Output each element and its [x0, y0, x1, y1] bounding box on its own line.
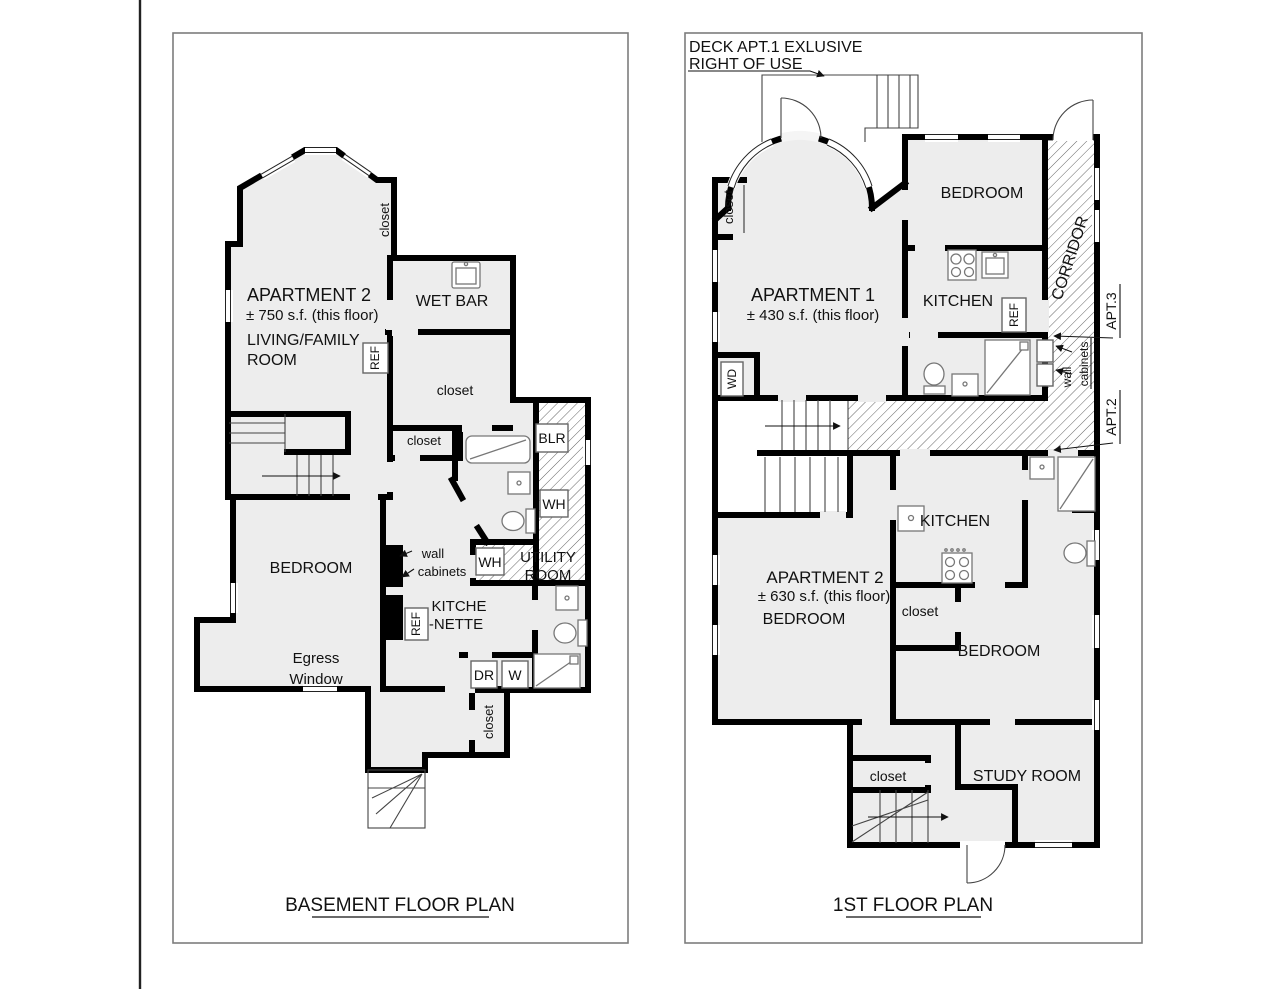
toilet-icon	[554, 620, 587, 646]
kitchen-sink-icon	[982, 252, 1008, 278]
utility-room-label-2: ROOM	[525, 567, 572, 584]
laundry-sink-icon	[556, 586, 578, 610]
shower-icon	[534, 654, 580, 688]
utility-room-label-1: UTILITY	[520, 549, 576, 566]
ref-label: REF	[1007, 303, 1021, 327]
boiler-label: BLR	[538, 430, 565, 446]
apt2-label: APT.2	[1103, 398, 1119, 436]
wall-cabinets-label-2: cabinets	[1077, 342, 1091, 387]
bathroom-sink-icon	[952, 374, 978, 396]
apartment1-area: ± 430 s.f. (this floor)	[747, 307, 879, 324]
wet-bar-sink-icon	[452, 262, 480, 288]
deck-note-1: DECK APT.1 EXLUSIVE	[689, 39, 862, 56]
bedroom-label: BEDROOM	[941, 185, 1024, 202]
shower-icon	[985, 340, 1030, 395]
basement-entry-stairs	[368, 770, 425, 828]
apartment1-label: APARTMENT 1	[751, 285, 875, 305]
wall-cabinets-label-1: wall	[421, 546, 445, 561]
first-floor-title: 1ST FLOOR PLAN	[833, 895, 993, 916]
closet-label: closet	[721, 190, 736, 224]
living-room-label-2: ROOM	[247, 352, 297, 369]
water-heater-label: WH	[478, 554, 501, 570]
ref-label: REF	[368, 346, 382, 370]
wall-cabinet-box	[1037, 364, 1053, 386]
deck-note-2: RIGHT OF USE	[689, 56, 803, 73]
egress-window-label-1: Egress	[293, 650, 340, 667]
closet-label: closet	[437, 382, 474, 398]
stove-icon	[948, 250, 976, 280]
wall-cabinets-label-1: wall	[1060, 367, 1074, 389]
kitchen-label: KITCHEN	[920, 513, 990, 530]
stove-icon	[942, 549, 972, 583]
water-heater-label: WH	[542, 496, 565, 512]
wet-bar-label: WET BAR	[416, 293, 489, 310]
first-floor-plan: DECK APT.1 EXLUSIVE RIGHT OF USE closet …	[685, 33, 1142, 943]
apartment2-label: APARTMENT 2	[766, 568, 883, 587]
basement-floor-plan: APARTMENT 2 ± 750 s.f. (this floor) LIVI…	[173, 33, 628, 943]
floor-plan-drawing: APARTMENT 2 ± 750 s.f. (this floor) LIVI…	[0, 0, 1280, 989]
kitchenette-label-2: -NETTE	[429, 616, 483, 633]
study-room-label: STUDY ROOM	[973, 768, 1081, 785]
dryer-label: DR	[474, 667, 494, 683]
apt3-label: APT.3	[1103, 292, 1119, 330]
apartment2-label: APARTMENT 2	[247, 285, 371, 305]
bathtub-icon	[466, 436, 530, 463]
closet-label: closet	[902, 603, 939, 619]
closet-label: closet	[481, 705, 496, 739]
washer-dryer-label: WD	[725, 369, 739, 389]
bedroom-label: BEDROOM	[270, 560, 353, 577]
wall-cabinets-label-2: cabinets	[418, 564, 467, 579]
kitchen-label: KITCHEN	[923, 293, 993, 310]
egress-window-label-2: Window	[289, 671, 343, 688]
basement-title: BASEMENT FLOOR PLAN	[285, 895, 515, 916]
kitchenette-label-1: KITCHE	[431, 598, 486, 615]
bathroom-sink-icon	[508, 472, 530, 494]
bedroom-label: BEDROOM	[958, 643, 1041, 660]
toilet-icon	[502, 509, 535, 533]
deck	[762, 75, 918, 142]
closet-label: closet	[377, 203, 392, 237]
living-room-label-1: LIVING/FAMILY	[247, 332, 360, 349]
apartment2-area: ± 630 s.f. (this floor)	[758, 588, 890, 605]
closet-label: closet	[870, 768, 907, 784]
bedroom-label: BEDROOM	[763, 611, 846, 628]
toilet-icon	[924, 363, 945, 394]
apartment2-area: ± 750 s.f. (this floor)	[246, 307, 378, 324]
closet-label: closet	[407, 433, 441, 448]
shower-icon	[1058, 457, 1095, 511]
bathroom-sink-icon	[1030, 457, 1054, 479]
ref-label: REF	[409, 612, 423, 636]
washer-label: W	[508, 667, 522, 683]
wall-cabinet-box	[1037, 340, 1053, 362]
